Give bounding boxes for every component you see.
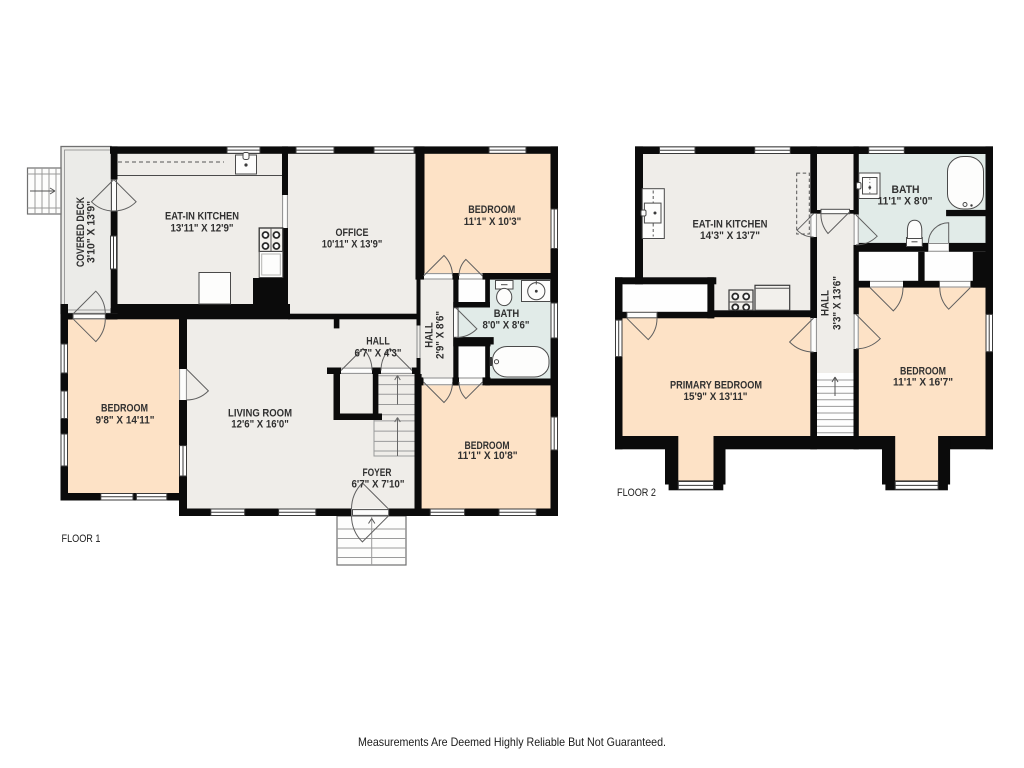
svg-text:FLOOR 1: FLOOR 1 <box>62 533 101 545</box>
svg-text:12'6" X 16'0": 12'6" X 16'0" <box>231 419 289 431</box>
svg-text:HALL: HALL <box>366 336 390 348</box>
svg-text:Measurements Are Deemed Highly: Measurements Are Deemed Highly Reliable … <box>358 735 666 749</box>
svg-text:2'9" X 8'6": 2'9" X 8'6" <box>435 311 447 359</box>
svg-text:11'1" X 8'0": 11'1" X 8'0" <box>878 196 933 208</box>
svg-text:11'1" X 10'8": 11'1" X 10'8" <box>458 450 518 462</box>
svg-text:8'0" X 8'6": 8'0" X 8'6" <box>483 320 530 332</box>
svg-text:11'1" X 16'7": 11'1" X 16'7" <box>893 377 953 389</box>
svg-text:BATH: BATH <box>892 184 920 196</box>
svg-text:HALL: HALL <box>820 290 832 316</box>
svg-text:EAT-IN KITCHEN: EAT-IN KITCHEN <box>165 211 239 223</box>
svg-text:13'11" X 12'9": 13'11" X 12'9" <box>171 223 234 235</box>
svg-text:14'3" X 13'7": 14'3" X 13'7" <box>700 230 760 242</box>
svg-text:6'7" X 4'3": 6'7" X 4'3" <box>355 348 402 360</box>
svg-text:11'1" X 10'3": 11'1" X 10'3" <box>464 216 522 228</box>
svg-text:6'7" X 7'10": 6'7" X 7'10" <box>352 479 405 491</box>
svg-text:FLOOR 2: FLOOR 2 <box>617 487 656 499</box>
svg-text:OFFICE: OFFICE <box>336 227 369 239</box>
svg-text:9'8" X 14'11": 9'8" X 14'11" <box>96 415 155 427</box>
svg-text:FOYER: FOYER <box>363 467 392 479</box>
svg-text:BEDROOM: BEDROOM <box>468 204 515 216</box>
svg-text:EAT-IN KITCHEN: EAT-IN KITCHEN <box>693 219 768 231</box>
svg-text:15'9" X 13'11": 15'9" X 13'11" <box>684 391 748 403</box>
svg-text:BEDROOM: BEDROOM <box>101 403 148 415</box>
svg-text:3'3" X 13'6": 3'3" X 13'6" <box>832 276 844 330</box>
svg-text:3'10" X 13'9": 3'10" X 13'9" <box>86 201 98 263</box>
svg-text:BATH: BATH <box>494 308 520 320</box>
svg-text:PRIMARY BEDROOM: PRIMARY BEDROOM <box>670 380 762 392</box>
svg-text:10'11" X 13'9": 10'11" X 13'9" <box>322 239 383 251</box>
